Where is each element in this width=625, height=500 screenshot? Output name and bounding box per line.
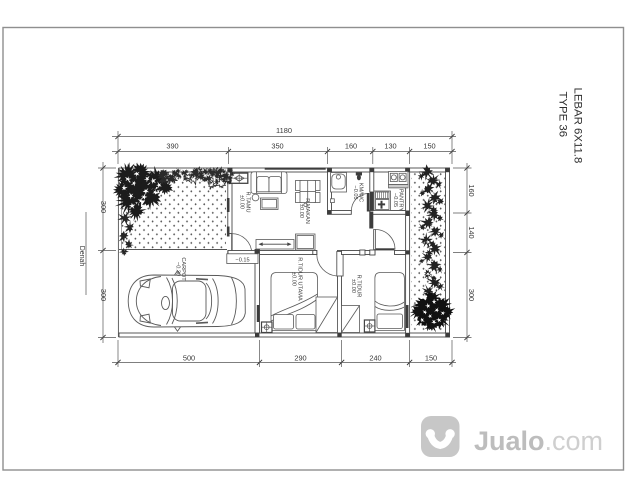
svg-text:150: 150 xyxy=(425,354,437,363)
svg-text:Denah: Denah xyxy=(78,246,85,267)
svg-text:±0.00: ±0.00 xyxy=(298,204,304,218)
svg-text:300: 300 xyxy=(467,289,476,301)
svg-text:300: 300 xyxy=(99,289,108,301)
svg-text:290: 290 xyxy=(294,354,306,363)
svg-text:350: 350 xyxy=(271,142,283,151)
svg-text:1180: 1180 xyxy=(276,126,292,135)
svg-text:240: 240 xyxy=(369,354,381,363)
svg-text:LEBAR 6X11.8: LEBAR 6X11.8 xyxy=(572,88,584,164)
svg-text:160: 160 xyxy=(467,184,476,196)
svg-text:±0.00: ±0.00 xyxy=(350,279,356,293)
svg-text:390: 390 xyxy=(166,142,178,151)
svg-text:±0.00: ±0.00 xyxy=(291,272,297,286)
svg-text:160: 160 xyxy=(345,142,357,151)
svg-text:±0.00: ±0.00 xyxy=(239,195,245,209)
svg-text:TYPE 36: TYPE 36 xyxy=(557,92,569,138)
svg-text:130: 130 xyxy=(384,142,396,151)
svg-text:Jualo.com: Jualo.com xyxy=(474,426,603,456)
svg-text:140: 140 xyxy=(467,226,476,238)
svg-text:300: 300 xyxy=(99,201,108,213)
svg-text:−0.05: −0.05 xyxy=(392,193,398,207)
svg-text:−0.05: −0.05 xyxy=(352,185,358,199)
svg-text:150: 150 xyxy=(423,142,435,151)
svg-text:500: 500 xyxy=(183,354,195,363)
svg-text:−0.15: −0.15 xyxy=(235,257,249,263)
